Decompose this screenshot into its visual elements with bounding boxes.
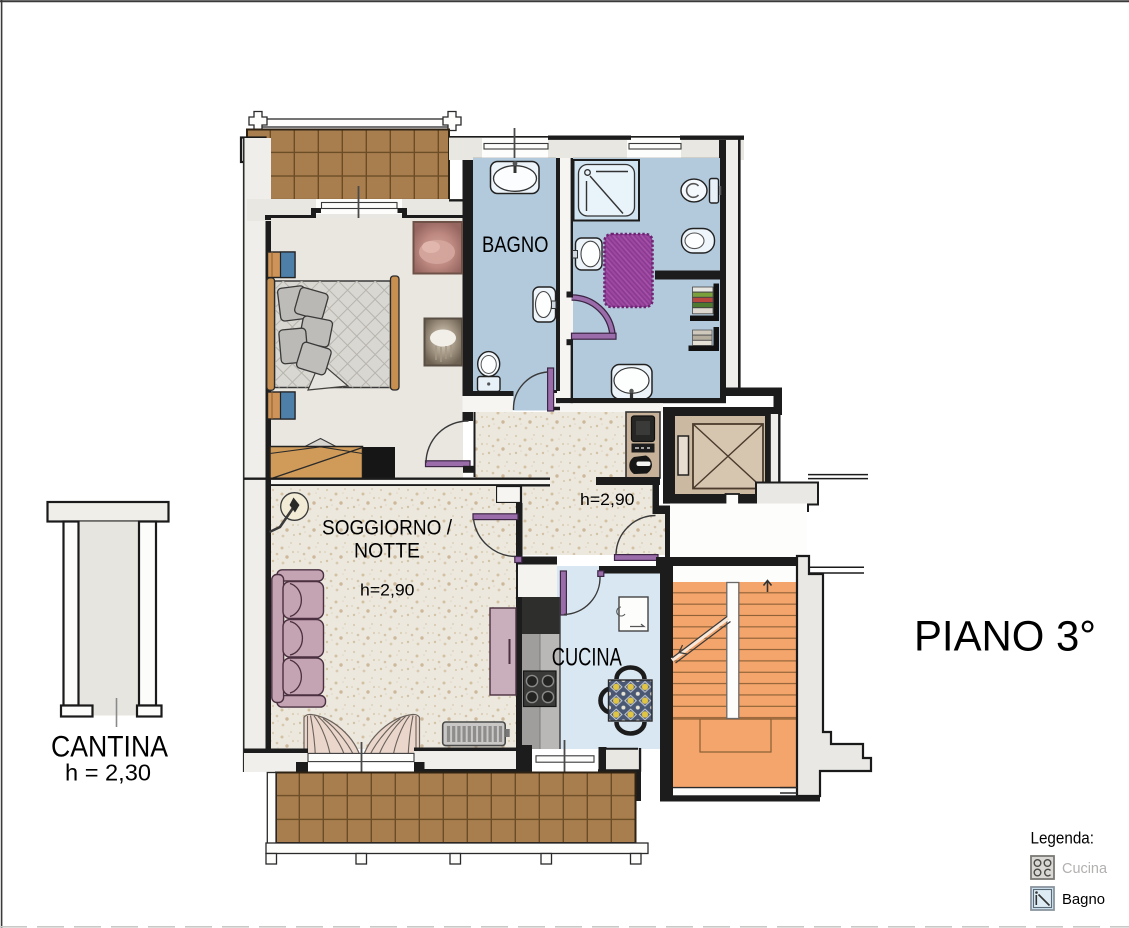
svg-text:SOGGIORNO /: SOGGIORNO / bbox=[322, 517, 452, 540]
svg-text:Bagno: Bagno bbox=[1062, 892, 1105, 908]
svg-text:PIANO 3°: PIANO 3° bbox=[914, 613, 1096, 661]
svg-text:CUCINA: CUCINA bbox=[552, 644, 622, 672]
svg-text:Legenda:: Legenda: bbox=[1031, 829, 1095, 848]
svg-text:h=2,90: h=2,90 bbox=[360, 581, 415, 600]
svg-text:BAGNO: BAGNO bbox=[482, 232, 549, 257]
svg-text:Cucina: Cucina bbox=[1062, 861, 1108, 877]
svg-text:h = 2,30: h = 2,30 bbox=[65, 760, 151, 786]
svg-text:h=2,90: h=2,90 bbox=[580, 490, 635, 509]
svg-text:NOTTE: NOTTE bbox=[354, 540, 420, 563]
